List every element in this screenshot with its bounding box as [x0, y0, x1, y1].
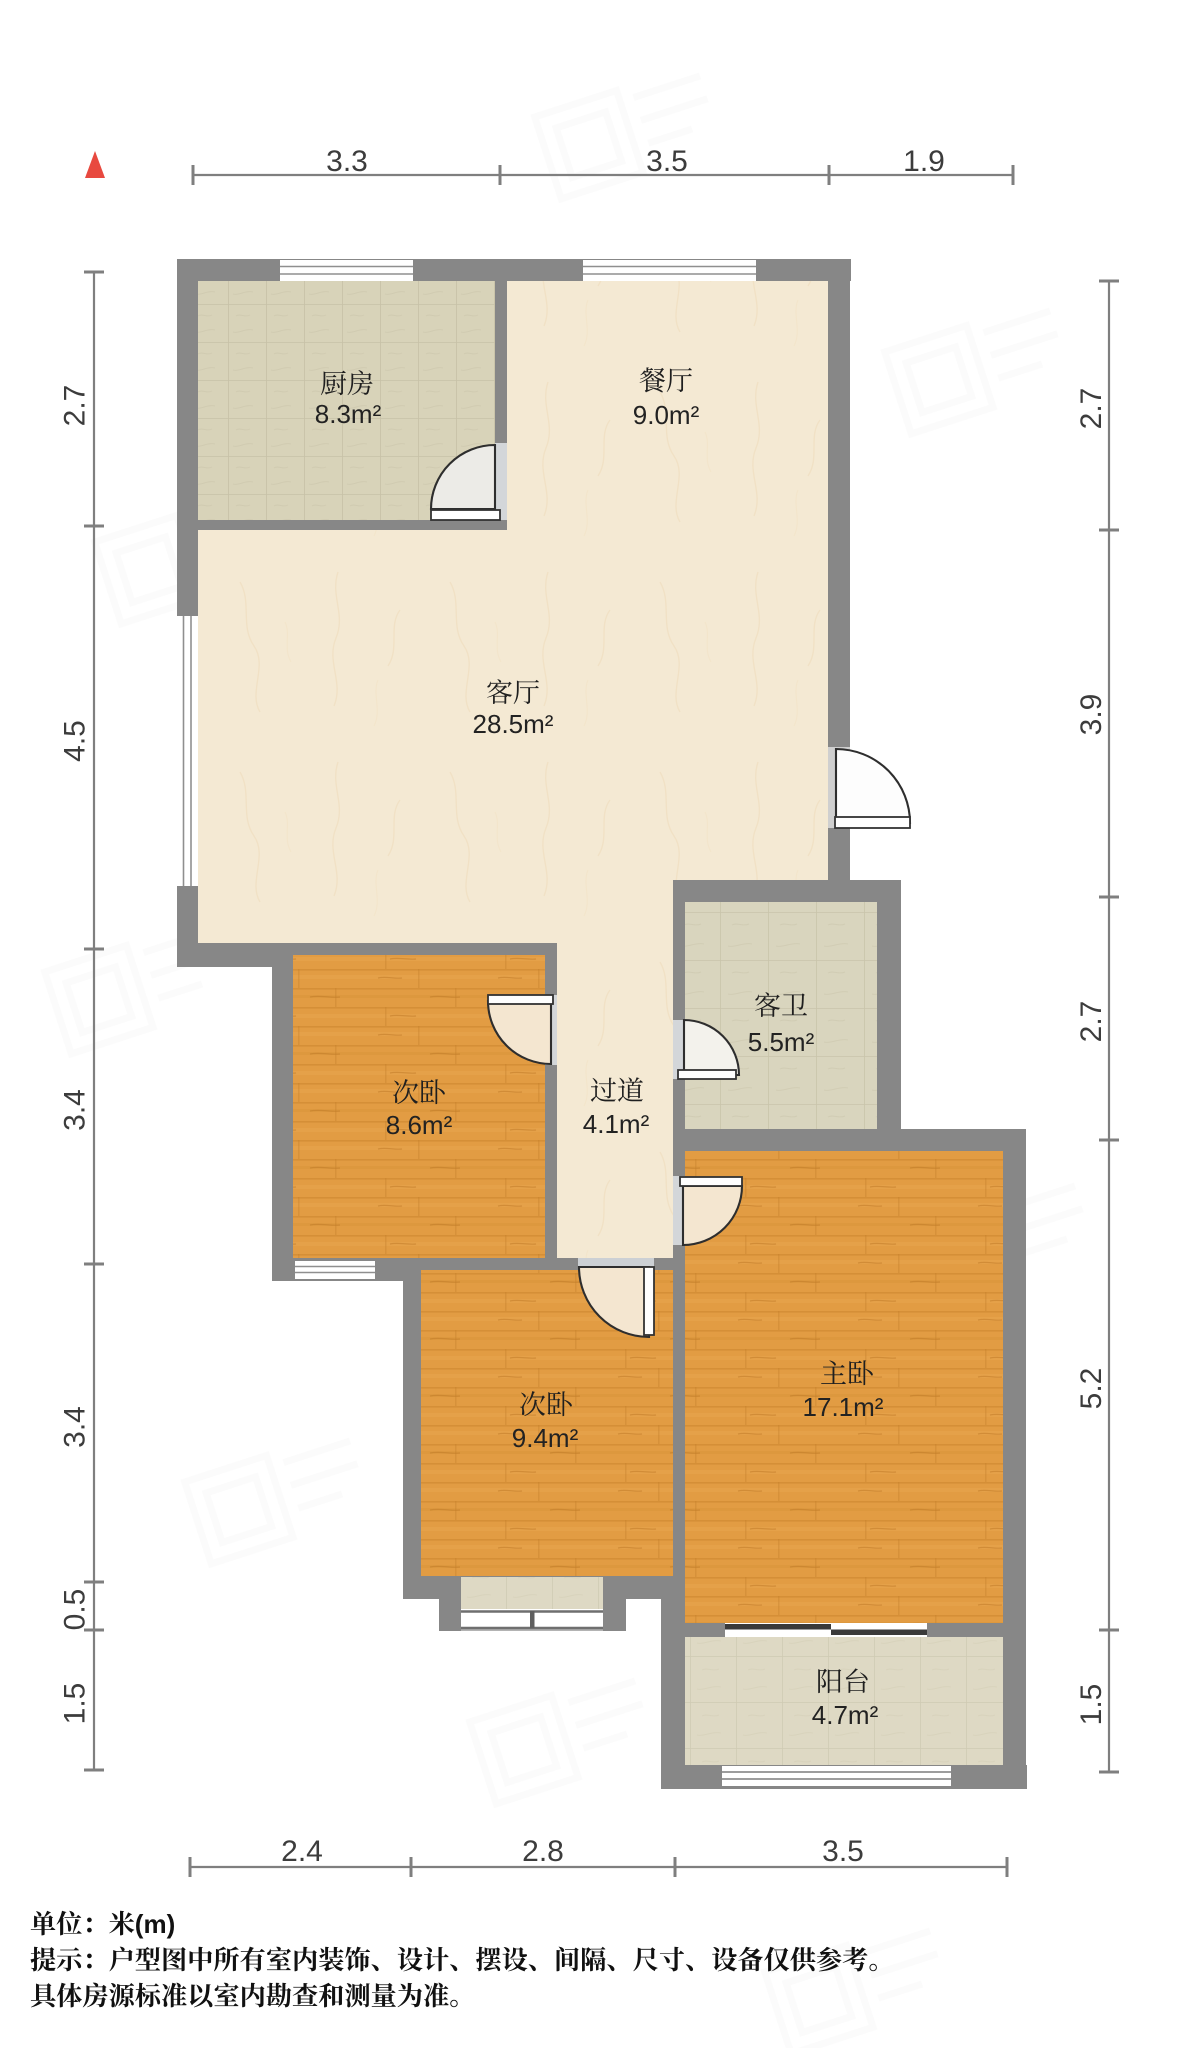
svg-text:3.3: 3.3 [326, 145, 368, 178]
svg-text:4.5: 4.5 [59, 720, 92, 762]
svg-text:5.2: 5.2 [1075, 1368, 1108, 1410]
svg-text:3.9: 3.9 [1075, 694, 1108, 736]
svg-text:9.4m²: 9.4m² [512, 1423, 579, 1453]
svg-text:4.7m²: 4.7m² [812, 1700, 879, 1730]
svg-text:0.5: 0.5 [59, 1589, 92, 1631]
svg-text:(m): (m) [135, 1909, 175, 1939]
svg-text:2.4: 2.4 [281, 1835, 323, 1868]
svg-text:5.5m²: 5.5m² [748, 1027, 815, 1057]
svg-text:2.7: 2.7 [1075, 388, 1108, 430]
svg-text:2.7: 2.7 [59, 385, 92, 427]
svg-text:3.5: 3.5 [822, 1835, 864, 1868]
svg-text:9.0m²: 9.0m² [633, 400, 700, 430]
svg-text:3.4: 3.4 [59, 1406, 92, 1448]
svg-text:1.5: 1.5 [59, 1683, 92, 1725]
svg-text:2.8: 2.8 [522, 1835, 564, 1868]
svg-text:8.6m²: 8.6m² [386, 1110, 453, 1140]
svg-text:17.1m²: 17.1m² [803, 1392, 884, 1422]
svg-text:3.5: 3.5 [646, 145, 688, 178]
svg-text:3.4: 3.4 [59, 1089, 92, 1131]
svg-text:4.1m²: 4.1m² [583, 1109, 650, 1139]
svg-text:2.7: 2.7 [1075, 1001, 1108, 1043]
svg-text:1.5: 1.5 [1075, 1684, 1108, 1726]
svg-text:28.5m²: 28.5m² [473, 709, 554, 739]
svg-text:1.9: 1.9 [903, 145, 945, 178]
svg-text:8.3m²: 8.3m² [315, 399, 382, 429]
